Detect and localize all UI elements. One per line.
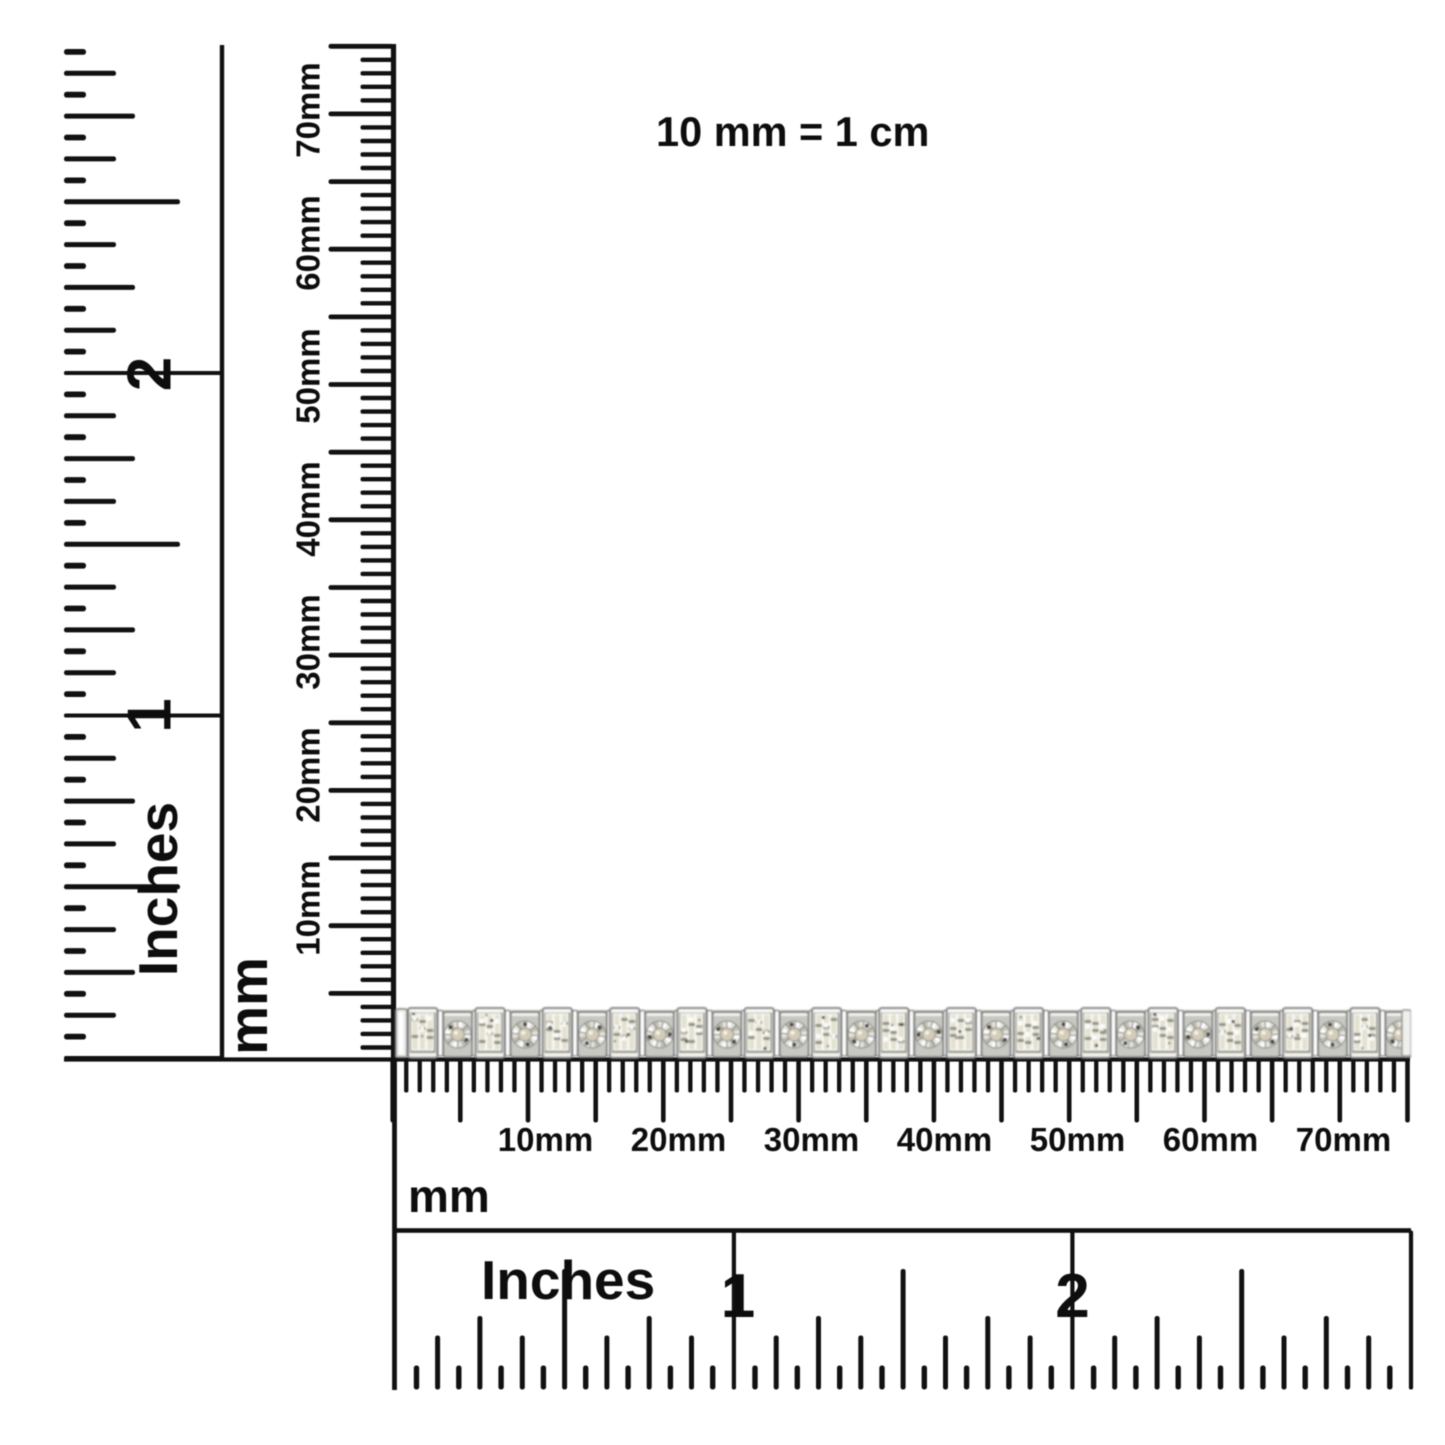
- svg-text:10mm: 10mm: [290, 860, 327, 955]
- svg-text:50mm: 50mm: [290, 328, 327, 423]
- svg-text:Inches: Inches: [481, 1249, 655, 1311]
- svg-text:60mm: 60mm: [290, 195, 327, 290]
- svg-text:Inches: Inches: [127, 802, 189, 976]
- svg-text:60mm: 60mm: [1163, 1121, 1258, 1158]
- svg-text:2: 2: [1055, 1262, 1089, 1331]
- svg-text:20mm: 20mm: [631, 1121, 726, 1158]
- svg-text:50mm: 50mm: [1030, 1121, 1125, 1158]
- svg-text:10mm: 10mm: [498, 1121, 593, 1158]
- svg-text:30mm: 30mm: [764, 1121, 859, 1158]
- svg-text:40mm: 40mm: [897, 1121, 992, 1158]
- svg-text:20mm: 20mm: [290, 727, 327, 822]
- svg-text:40mm: 40mm: [290, 461, 327, 556]
- svg-text:1: 1: [116, 698, 185, 732]
- svg-text:mm: mm: [408, 1170, 490, 1222]
- svg-text:1: 1: [721, 1262, 755, 1331]
- svg-text:30mm: 30mm: [290, 594, 327, 689]
- svg-text:70mm: 70mm: [1296, 1121, 1391, 1158]
- svg-text:10 mm = 1 cm: 10 mm = 1 cm: [656, 108, 929, 155]
- svg-text:mm: mm: [217, 957, 279, 1055]
- svg-text:70mm: 70mm: [290, 62, 327, 157]
- svg-text:2: 2: [116, 357, 185, 391]
